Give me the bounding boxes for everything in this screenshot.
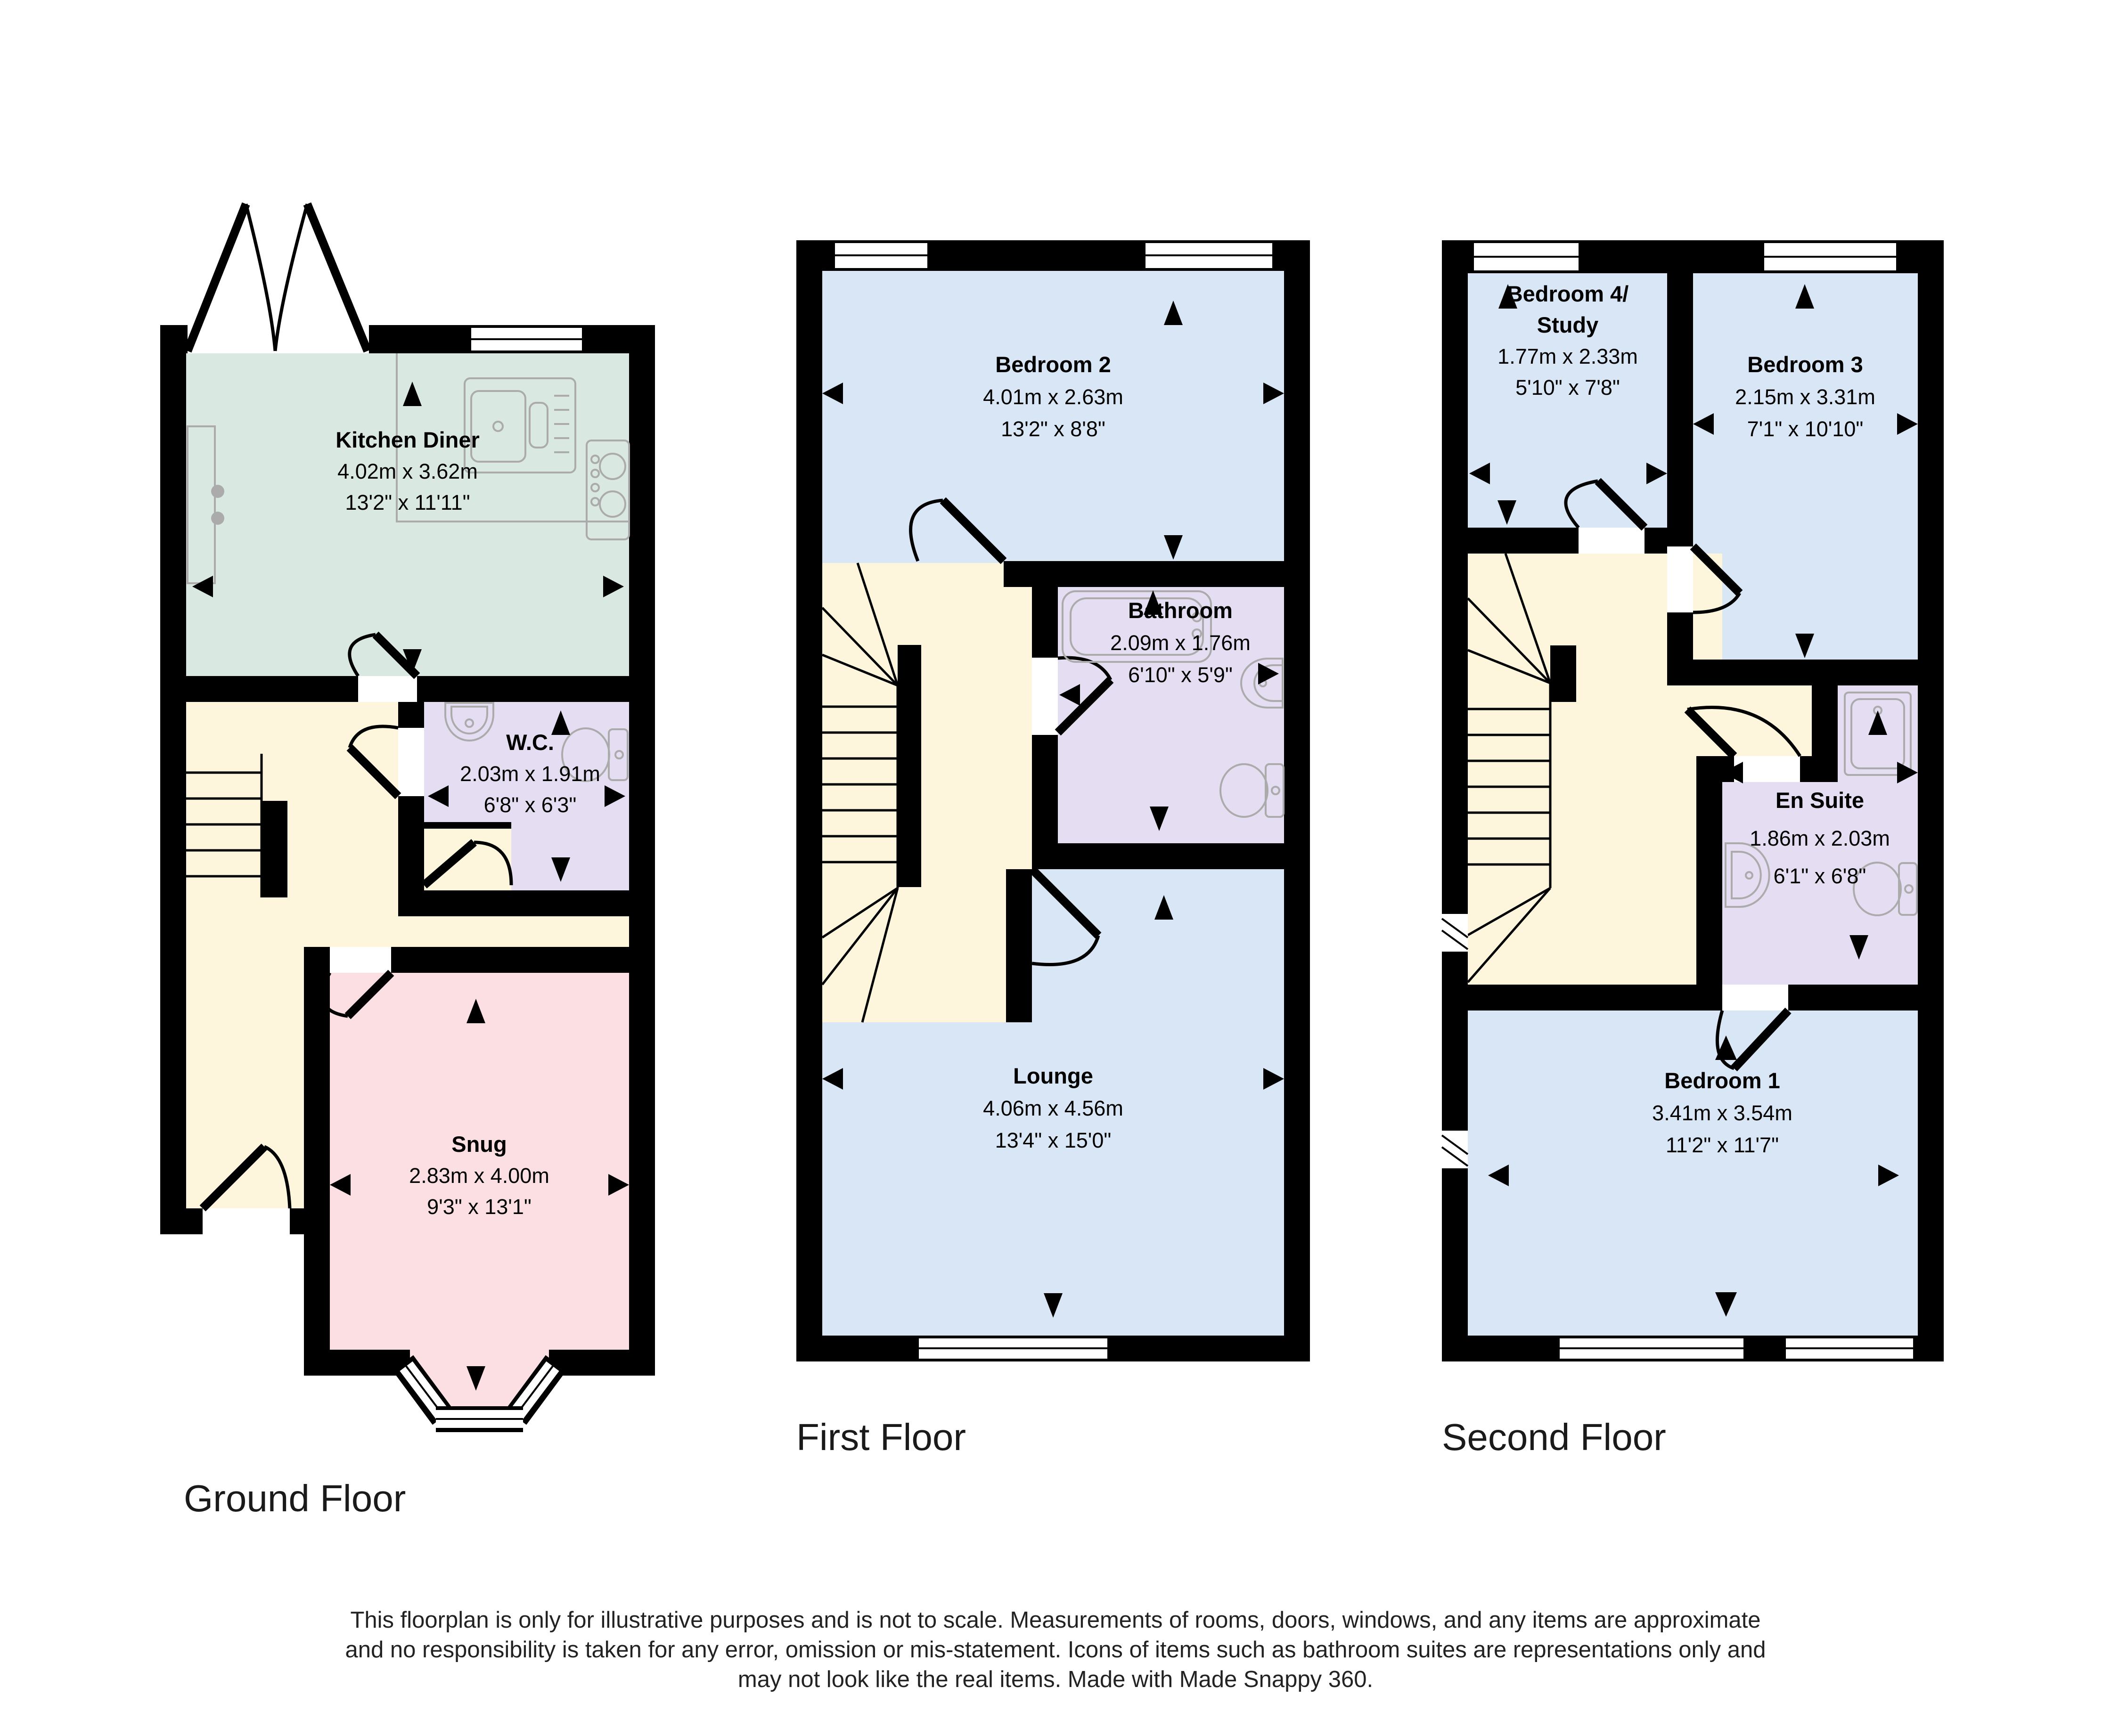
bedroom3-room [1693,273,1918,660]
bedroom1-window-left [1560,1338,1743,1359]
bedroom1-window-right [1786,1338,1913,1359]
bedroom3-imperial: 7'1" x 10'10" [1747,417,1864,441]
first-floor-plan: Bedroom 2 4.01m x 2.63m 13'2" x 8'8" Bat… [792,207,1315,1394]
disclaimer-line-3: may not look like the real items. Made w… [0,1665,2111,1695]
snug-metric: 2.83m x 4.00m [409,1164,549,1188]
wc-imperial: 6'8" x 6'3" [484,793,577,817]
bedroom4-metric: 1.77m x 2.33m [1497,344,1638,368]
wc-closet [424,822,511,890]
wc-label: W.C. [506,730,554,755]
bedroom3-label: Bedroom 3 [1747,352,1863,377]
ground-floor-title: Ground Floor [184,1477,406,1520]
floorplan-page: Kitchen Diner 4.02m x 3.62m 13'2" x 11'1… [0,0,2111,1736]
snug-room [330,973,629,1406]
bedroom4-imperial: 5'10" x 7'8" [1515,375,1620,399]
bathroom-metric: 2.09m x 1.76m [1110,631,1251,655]
disclaimer-text: This floorplan is only for illustrative … [0,1606,2111,1695]
bedroom2-window-left [835,243,927,268]
bedroom4-window [1474,243,1579,270]
kitchen-imperial: 13'2" x 11'11" [345,490,470,514]
bedroom4-label-line1: Bedroom 4/ [1507,281,1629,306]
hallway [186,676,398,947]
bedroom3-metric: 2.15m x 3.31m [1735,385,1875,409]
lounge-metric: 4.06m x 4.56m [983,1096,1123,1120]
bedroom1-label: Bedroom 1 [1664,1068,1780,1093]
lounge-window [919,1338,1107,1359]
bedroom2-metric: 4.01m x 2.63m [983,385,1123,409]
lounge-imperial: 13'4" x 15'0" [995,1128,1112,1152]
lounge-label: Lounge [1013,1063,1093,1088]
kitchen-label: Kitchen Diner [335,427,480,452]
kitchen-metric: 4.02m x 3.62m [337,459,478,483]
first-floor-title: First Floor [796,1416,966,1459]
hallway-strip [398,916,629,947]
ensuite-imperial: 6'1" x 6'8" [1774,864,1866,888]
bedroom2-imperial: 13'2" x 8'8" [1001,417,1105,441]
snug-imperial: 9'3" x 13'1" [427,1195,532,1219]
bathroom-imperial: 6'10" x 5'9" [1128,663,1233,687]
bedroom4-room [1468,273,1667,528]
bedroom4-label-line2: Study [1537,312,1599,337]
wc-metric: 2.03m x 1.91m [460,762,600,786]
bedroom1-imperial: 11'2" x 11'7" [1666,1133,1779,1157]
disclaimer-line-2: and no responsibility is taken for any e… [0,1635,2111,1665]
bedroom3-window [1764,243,1896,270]
bedroom1-metric: 3.41m x 3.54m [1652,1101,1792,1125]
bathroom-room [1058,587,1284,843]
ensuite-label: En Suite [1776,788,1864,813]
bedroom1-room [1468,1011,1918,1336]
bedroom2-window-right [1146,243,1272,268]
disclaimer-line-1: This floorplan is only for illustrative … [0,1606,2111,1635]
kitchen-window [471,328,582,350]
snug-label: Snug [451,1132,507,1157]
ground-floor-plan: Kitchen Diner 4.02m x 3.62m 13'2" x 11'1… [155,141,679,1456]
bathroom-label: Bathroom [1128,598,1233,623]
second-floor-title: Second Floor [1442,1416,1666,1459]
ensuite-metric: 1.86m x 2.03m [1750,826,1890,850]
second-floor-plan: Bedroom 4/ Study 1.77m x 2.33m 5'10" x 7… [1437,207,1960,1394]
bedroom2-label: Bedroom 2 [995,352,1111,377]
first-landing [822,563,1032,1022]
